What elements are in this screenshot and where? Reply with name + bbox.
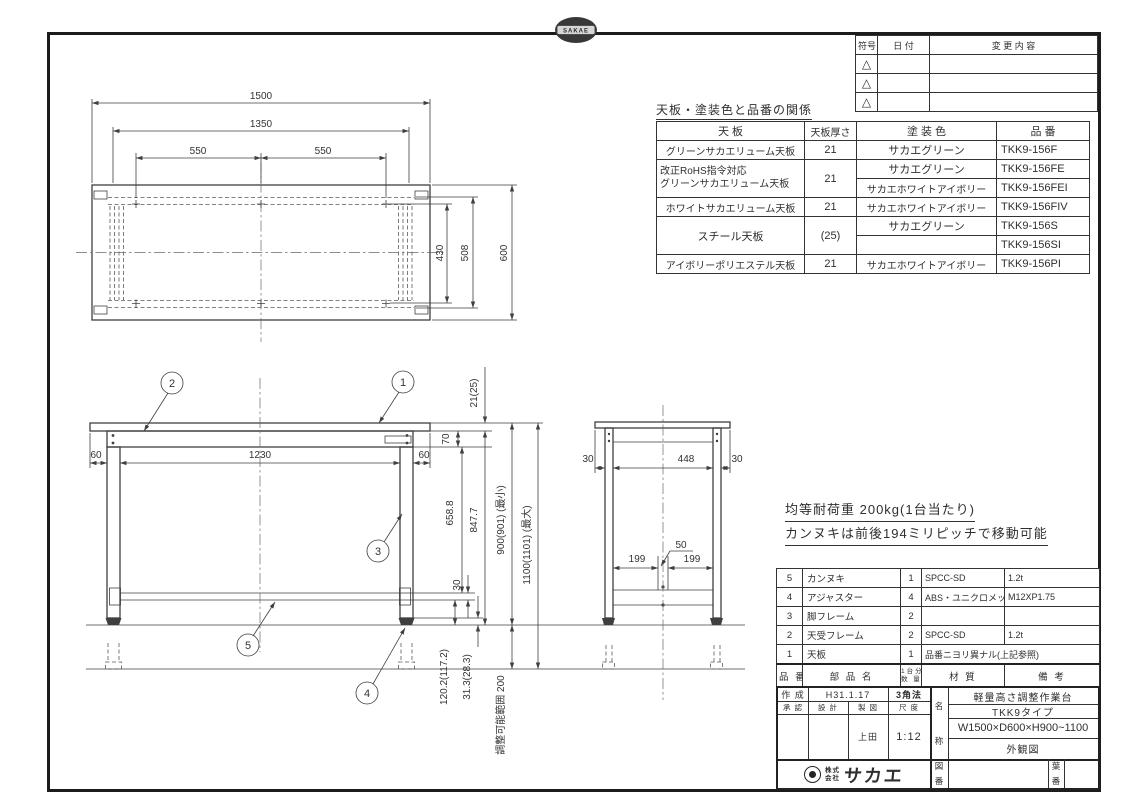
- finish-header-thickness: 天板厚さ: [805, 122, 857, 141]
- approved-label: 承 認: [778, 701, 808, 714]
- finish-top-line1: 改正RoHS指令対応: [660, 166, 747, 177]
- finish-top-cell: スチール天板: [657, 217, 805, 255]
- drafter-name: 上田: [848, 714, 888, 759]
- finish-color-cell: サカエグリーン: [857, 141, 997, 160]
- sheet-number-label-top: 葉: [1052, 760, 1061, 772]
- finish-header-top: 天 板: [657, 122, 805, 141]
- dim-front-60-left: 60: [90, 450, 102, 461]
- part-name-cell: 天受フレーム: [803, 626, 901, 645]
- part-material-cell: SPCC-SD: [922, 569, 1005, 588]
- part-material-cell: SPCC-SD: [922, 626, 1005, 645]
- side-view-geometry: [595, 405, 730, 700]
- finish-top-cell: アイボリーポリエステル天板: [657, 255, 805, 274]
- finish-color-cell: サカエグリーン: [857, 160, 997, 179]
- dim-plan-600: 600: [499, 244, 510, 261]
- dim-plan-1500: 1500: [250, 91, 273, 102]
- revision-symbol-triangle: △: [856, 74, 878, 93]
- finish-color-cell: サカエホワイトアイボリー: [857, 179, 997, 198]
- dim-front-adjuster-2: 31.3(28.3): [462, 654, 473, 700]
- part-no-cell: 1: [777, 645, 803, 665]
- revision-date-cell: [878, 93, 930, 112]
- part-remarks-cell: 1.2t: [1005, 569, 1100, 588]
- revision-header-date: 日 付: [878, 36, 930, 55]
- dim-side-30-left: 30: [582, 454, 594, 465]
- dim-front-658: 658.8: [445, 500, 456, 525]
- dim-front-adjust-range: 調整可能範囲 200: [494, 675, 507, 755]
- balloon-4: 4: [364, 688, 370, 700]
- design-value: [808, 714, 848, 759]
- finish-top-cell: ホワイトサカエリューム天板: [657, 198, 805, 217]
- revision-header-change: 変 更 内 容: [930, 36, 1098, 55]
- finish-partno-cell: TKK9-156PI: [997, 255, 1090, 274]
- dim-front-top-thickness: 21(25): [469, 379, 480, 408]
- dim-side-448: 448: [678, 454, 695, 465]
- note-load-capacity: 均等耐荷重 200kg(1台当たり): [785, 498, 975, 522]
- finish-partno-cell: TKK9-156SI: [997, 236, 1090, 255]
- dim-front-30: 30: [452, 579, 463, 591]
- part-no-cell: 5: [777, 569, 803, 588]
- finish-partno-cell: TKK9-156FEI: [997, 179, 1090, 198]
- part-name-cell: アジャスター: [803, 588, 901, 607]
- finish-color-cell: [857, 236, 997, 255]
- finish-top-cell: 改正RoHS指令対応 グリーンサカエリューム天板: [657, 160, 805, 198]
- dim-side-199-left: 199: [629, 554, 646, 565]
- part-qty-cell: 2: [901, 607, 922, 626]
- revision-change-cell: [930, 74, 1098, 93]
- drawing-number-value: [948, 759, 1048, 788]
- drawing-number-label-top: 図: [935, 760, 944, 772]
- finish-thickness-cell: 21: [805, 255, 857, 274]
- part-no-cell: 4: [777, 588, 803, 607]
- parts-header-material: 材 質: [922, 664, 1005, 687]
- finish-top-line2: グリーンサカエリューム天板: [660, 179, 789, 190]
- product-series: TKK9タイプ: [948, 704, 1098, 718]
- projection-method: 3角法: [888, 688, 930, 701]
- part-qty-cell: 4: [901, 588, 922, 607]
- company-prefix-top: 株式: [825, 767, 840, 774]
- parts-header-remarks: 備 考: [1005, 664, 1100, 687]
- drawing-notes: 均等耐荷重 200kg(1台当たり) カンヌキは前後194ミリピッチで移動可能: [785, 498, 1048, 546]
- revision-table: 符号 日 付 変 更 内 容 △ △ △: [855, 35, 1098, 112]
- part-material-cell: 品番ニヨリ異ナル(上記参照): [922, 645, 1100, 665]
- finish-partno-cell: TKK9-156FIV: [997, 198, 1090, 217]
- design-label: 設 計: [808, 701, 848, 714]
- revision-change-cell: [930, 55, 1098, 74]
- finish-table-title: 天板・塗装色と品番の関係: [656, 101, 812, 120]
- drawing-scale: 1:12: [888, 714, 930, 759]
- revision-date-cell: [878, 74, 930, 93]
- part-material-cell: [922, 607, 1005, 626]
- sakae-stamp-icon: SAKAE: [555, 17, 597, 43]
- finish-partno-cell: TKK9-156F: [997, 141, 1090, 160]
- plan-view-geometry: [76, 162, 444, 342]
- stamp-brand-text: SAKAE: [563, 29, 589, 35]
- dim-side-30-right: 30: [731, 454, 743, 465]
- finish-partno-cell: TKK9-156FE: [997, 160, 1090, 179]
- revision-symbol-triangle: △: [856, 93, 878, 112]
- finish-thickness-cell: 21: [805, 198, 857, 217]
- view-type: 外観図: [948, 738, 1098, 759]
- dim-plan-550-right: 550: [315, 146, 332, 157]
- created-date: H31.1.17: [808, 688, 888, 701]
- dim-front-60-right: 60: [418, 450, 430, 461]
- finish-top-cell: グリーンサカエリューム天板: [657, 141, 805, 160]
- draft-label: 製 図: [848, 701, 888, 714]
- sheet-number-label-bottom: 番: [1052, 775, 1061, 787]
- revision-symbol-triangle: △: [856, 55, 878, 74]
- finish-thickness-cell: 21: [805, 141, 857, 160]
- part-no-cell: 2: [777, 626, 803, 645]
- company-logo: 株式 会社 サカエ: [778, 759, 930, 790]
- dim-plan-1350: 1350: [250, 119, 273, 130]
- part-balloons: 1 2 3 4 5: [144, 371, 414, 704]
- dim-front-1230: 1230: [249, 450, 272, 461]
- product-size: W1500×D600×H900~1100: [948, 718, 1098, 738]
- balloon-2: 2: [169, 378, 175, 390]
- finish-color-cell: サカエホワイトアイボリー: [857, 198, 997, 217]
- plan-view-dimensions: 1500 1350 550 550 430 508 600: [92, 91, 517, 320]
- balloon-1: 1: [400, 377, 406, 389]
- part-no-cell: 3: [777, 607, 803, 626]
- name-label-top: 名: [935, 700, 944, 712]
- name-label-bottom: 称: [935, 735, 944, 747]
- dim-side-199-right: 199: [684, 554, 701, 565]
- front-view-dimensions: 60 1230 60 21(25) 70 658.8 847.7 900(901…: [90, 367, 543, 755]
- company-prefix-bottom: 会社: [825, 775, 840, 782]
- dim-plan-430: 430: [435, 244, 446, 261]
- company-logo-icon: [804, 766, 821, 783]
- parts-header-qty: 1台分 数 量: [901, 664, 922, 687]
- parts-header-no: 品 番: [777, 664, 803, 687]
- parts-header-qty-line2: 数 量: [901, 676, 922, 683]
- finish-header-partno: 品 番: [997, 122, 1090, 141]
- dim-front-min-height: 900(901) (最小): [495, 485, 507, 554]
- finish-header-color: 塗 装 色: [857, 122, 997, 141]
- finish-thickness-cell: 21: [805, 160, 857, 198]
- revision-change-cell: [930, 93, 1098, 112]
- part-remarks-cell: M12XP1.75: [1005, 588, 1100, 607]
- parts-header-name: 部 品 名: [803, 664, 901, 687]
- balloon-5: 5: [245, 640, 251, 652]
- dim-front-70: 70: [441, 433, 452, 445]
- part-remarks-cell: 1.2t: [1005, 626, 1100, 645]
- created-label: 作 成: [778, 688, 808, 701]
- company-name: サカエ: [843, 762, 906, 788]
- part-qty-cell: 1: [901, 569, 922, 588]
- dim-front-847: 847.7: [469, 507, 480, 532]
- part-name-cell: 天板: [803, 645, 901, 665]
- dim-plan-550-left: 550: [190, 146, 207, 157]
- revision-date-cell: [878, 55, 930, 74]
- dim-side-50: 50: [675, 540, 687, 551]
- drawing-number-label-bottom: 番: [935, 775, 944, 787]
- part-qty-cell: 2: [901, 626, 922, 645]
- part-qty-cell: 1: [901, 645, 922, 665]
- part-material-cell: ABS・ユニクロメッキ: [922, 588, 1005, 607]
- finish-color-cell: サカエホワイトアイボリー: [857, 255, 997, 274]
- revision-header-symbol: 符号: [856, 36, 878, 55]
- title-block: 作 成 H31.1.17 3角法 承 認 設 計 製 図 尺 度 上田 1:12…: [776, 686, 1100, 790]
- parts-header-qty-line1: 1台分: [901, 668, 922, 675]
- approved-value: [778, 714, 808, 759]
- engineering-drawing-sheet: 1500 1350 550 550 430 508 600: [0, 0, 1139, 805]
- part-remarks-cell: [1005, 607, 1100, 626]
- finish-thickness-cell: (25): [805, 217, 857, 255]
- finish-table: 天 板 天板厚さ 塗 装 色 品 番 グリーンサカエリューム天板 21 サカエグ…: [656, 121, 1090, 274]
- note-rail-pitch: カンヌキは前後194ミリピッチで移動可能: [785, 522, 1048, 546]
- finish-color-cell: サカエグリーン: [857, 217, 997, 236]
- parts-list-table: 5 カンヌキ 1 SPCC-SD 1.2t 4 アジャスター 4 ABS・ユニク…: [776, 568, 1100, 687]
- product-type: 軽量高さ調整作業台: [948, 688, 1098, 704]
- balloon-3: 3: [375, 546, 381, 558]
- part-name-cell: 脚フレーム: [803, 607, 901, 626]
- finish-partno-cell: TKK9-156S: [997, 217, 1090, 236]
- part-name-cell: カンヌキ: [803, 569, 901, 588]
- dim-front-adjuster-1: 120.2(117.2): [439, 649, 450, 705]
- scale-label: 尺 度: [888, 701, 930, 714]
- sheet-number-value: [1064, 759, 1098, 788]
- dim-front-max-height: 1100(1101) (最大): [520, 505, 533, 584]
- dim-plan-508: 508: [460, 244, 471, 261]
